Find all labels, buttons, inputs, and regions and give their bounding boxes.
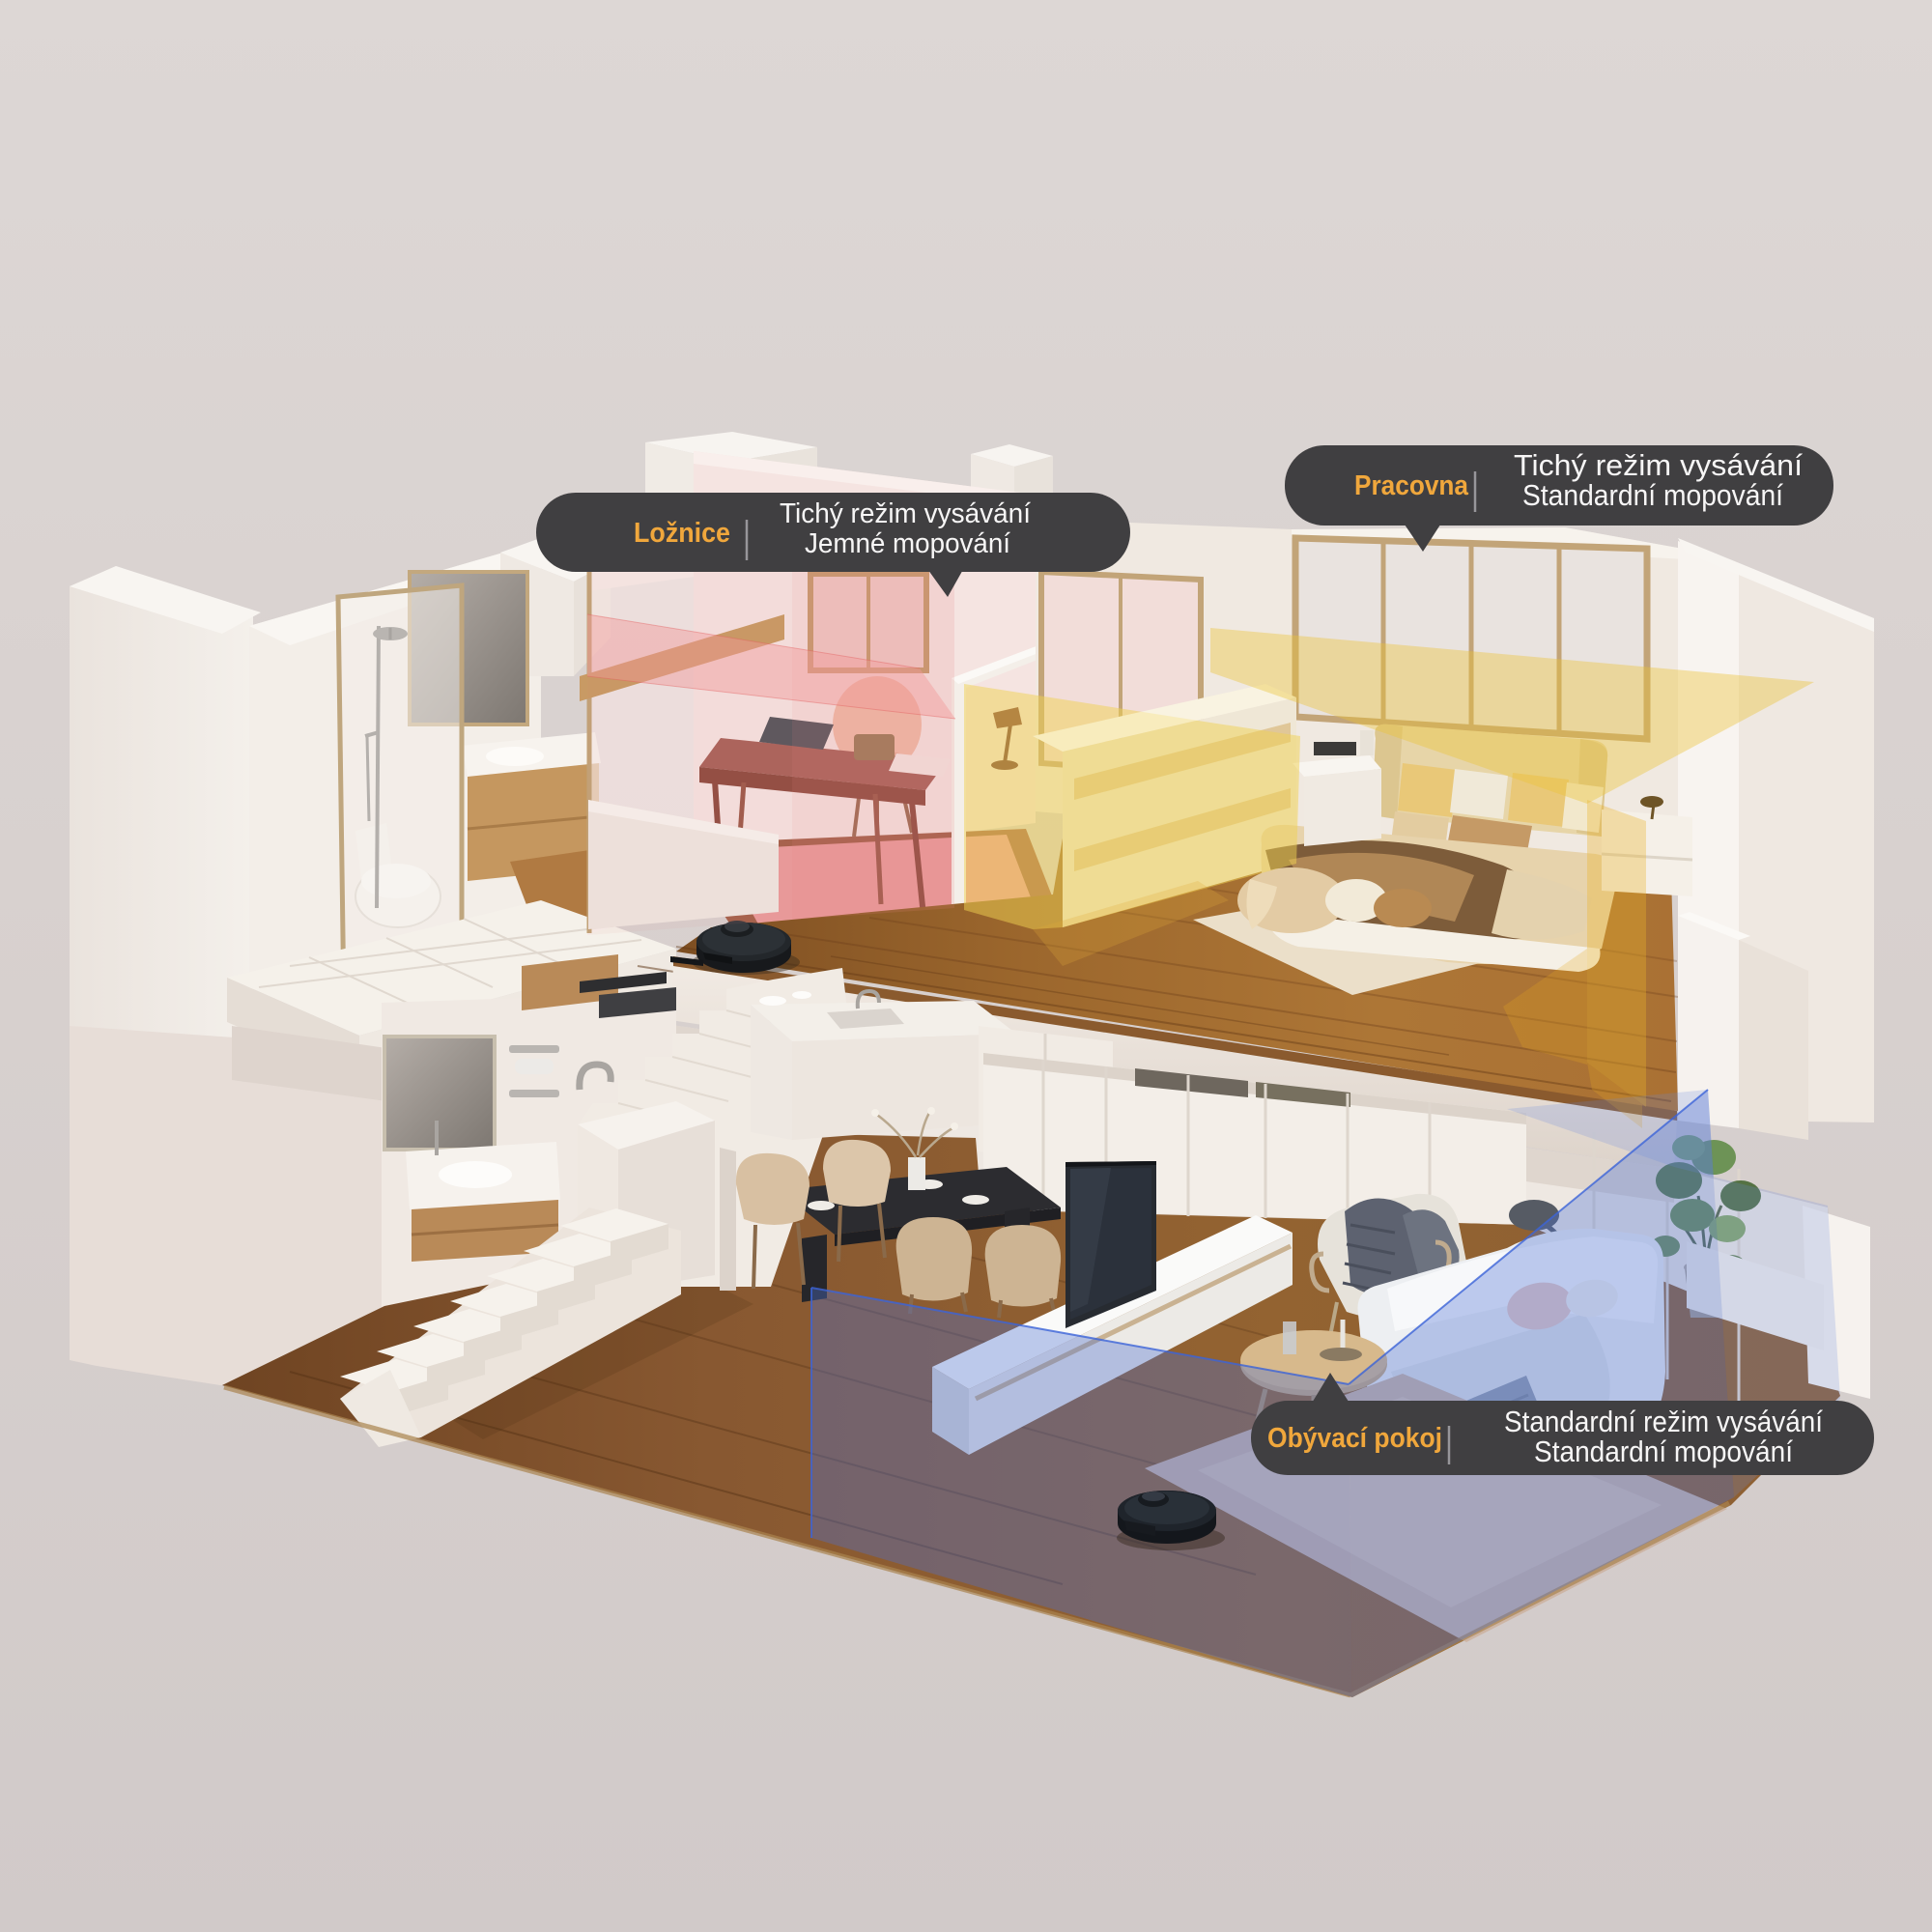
svg-text:Jemné mopování: Jemné mopování bbox=[805, 528, 1010, 559]
svg-text:Standardní mopování: Standardní mopování bbox=[1534, 1435, 1793, 1468]
svg-text:Tichý režim vysávání: Tichý režim vysávání bbox=[1514, 448, 1803, 482]
svg-text:Standardní režim vysávání: Standardní režim vysávání bbox=[1504, 1405, 1823, 1438]
svg-text:Standardní mopování: Standardní mopování bbox=[1522, 478, 1783, 512]
svg-text:Obývací pokoj: Obývací pokoj bbox=[1267, 1423, 1442, 1454]
svg-text:Pracovna: Pracovna bbox=[1354, 470, 1469, 501]
svg-text:Tichý režim vysávání: Tichý režim vysávání bbox=[780, 498, 1031, 529]
svg-text:Ložnice: Ložnice bbox=[634, 518, 730, 549]
